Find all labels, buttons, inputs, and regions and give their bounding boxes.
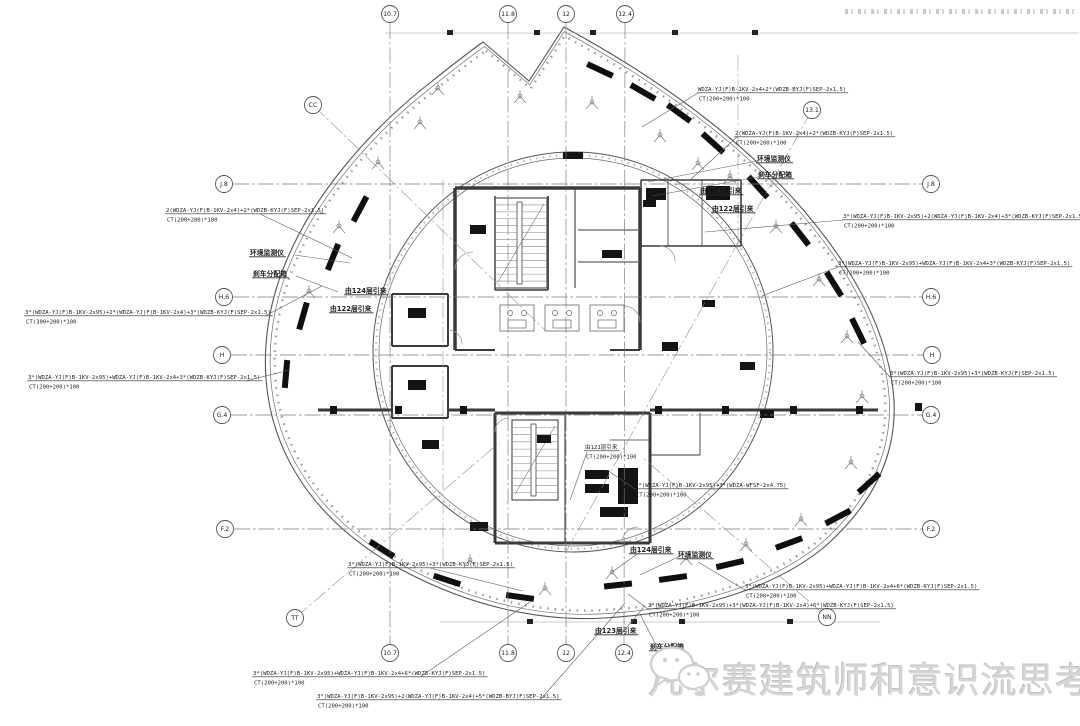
grid-bubble: 10.7	[382, 6, 399, 23]
grid-bubble: 12.4	[617, 6, 634, 23]
grid-bubble-label: H.6	[219, 294, 230, 301]
equipment-block	[408, 380, 426, 390]
machine-unit	[500, 305, 534, 331]
cable-annotation: 3*(WDZA-YJ(F)B-1KV-2x95)+3*(WDZA-YJ(F)B-…	[647, 603, 896, 619]
callout-label-text: 由123层引来	[595, 626, 637, 635]
grid-bubble-label: F.2	[927, 526, 936, 533]
leader-line	[612, 552, 640, 572]
spider-bracket	[539, 582, 551, 595]
equipment-block	[740, 362, 755, 370]
equipment-block	[470, 225, 486, 234]
grid-bubble: H.6	[923, 289, 940, 306]
spider-bracket	[514, 90, 526, 103]
spider-bracket	[654, 129, 666, 142]
leader-line	[858, 342, 890, 377]
callout-label: 环境监测仪	[677, 550, 714, 559]
grid-bubble-label: 11.8	[501, 650, 515, 657]
cable-tray-bar	[325, 243, 341, 271]
grid-bubble-label: TT	[290, 615, 299, 622]
grid-bubble: J.8	[923, 176, 940, 193]
cable-ct-text: CT(200+200)*100	[839, 271, 890, 277]
grid-bubble: G.4	[214, 407, 231, 424]
spider-bracket	[740, 538, 752, 551]
callout-label-text: 刹车分配箱	[758, 170, 792, 179]
equipment-block	[643, 200, 656, 207]
building-shell	[265, 27, 894, 619]
cable-tray-bar	[296, 302, 309, 331]
cable-spec-text: 3*(WDZA-YJ(F)B-1KV-2x95)+3*(WDZA-WFSF-2x…	[635, 483, 787, 489]
cable-tray-bar	[506, 592, 535, 602]
equipment-block	[460, 406, 467, 414]
cable-tray-bar	[629, 82, 656, 101]
cable-ct-text: CT(200+200)*100	[254, 681, 305, 687]
dimension-tick	[527, 619, 533, 624]
equipment-block	[537, 435, 551, 443]
callout-label-text: 环境监测仪	[250, 248, 284, 257]
cable-spec-text: 3*(WDZA-YJ(F)B-1KV-2x95)+2(WDZA-YJ(F)B-1…	[843, 214, 1080, 220]
machine-unit	[590, 305, 624, 331]
callout-label: 刹车分配箱	[757, 170, 794, 179]
grid-bubble-label: J.8	[219, 181, 228, 188]
cable-ct-text: CT(200+200)*100	[29, 385, 80, 391]
leader-line	[640, 614, 658, 649]
cable-ct-text: CT(200+200)*100	[318, 704, 369, 710]
cable-tray-bar	[716, 558, 745, 570]
callout-label-text: 环境监测仪	[678, 550, 712, 559]
machine-unit	[545, 305, 579, 331]
equipment-block	[602, 250, 622, 258]
callout-label-text: 由124层引来	[700, 186, 742, 195]
grid-bubble: G.4	[923, 407, 940, 424]
annotations: 2(WDZA-YJ(F)B-1KV-2x4)+2*(WDZB-KYJ(F)SEP…	[24, 87, 1080, 710]
spider-bracket	[414, 116, 426, 129]
cable-spec-text: 3*(WDZA-YJ(F)B-1KV-2x95)+3*(WDZA-YJ(F)B-…	[648, 603, 894, 609]
cable-annotation: 3*(WDZA-YJ(F)B-1KV-2x95)+3*(WDZB-KYJ(F)S…	[889, 371, 1057, 387]
cable-spec-text: 2(WDZA-YJ(F)B-1KV-2x4)+2*(WDZB-KYJ(F)SEP…	[166, 208, 324, 214]
grid-bubble: 12	[558, 6, 575, 23]
grid-bubble-label: 10.7	[383, 650, 397, 657]
spider-bracket	[795, 513, 807, 526]
leader-line	[648, 161, 757, 182]
grid-axes: J.8J.8H.6H.6HHG.4G.4F.2F.210.710.711.811…	[214, 6, 941, 662]
equipment-block	[760, 410, 774, 418]
grid-bubble-label: H.6	[926, 294, 937, 301]
cable-annotation: WDZA-YJ(F)B-1KV-2x4+2*(WDZB-BYJ(F)SEP-2x…	[697, 87, 848, 103]
equipment-block	[722, 406, 729, 414]
equipment-block	[422, 440, 439, 449]
dimension-tick	[752, 30, 758, 35]
grid-line-diagonal	[295, 442, 500, 618]
grid-bubble-label: G.4	[217, 412, 228, 419]
grid-bubble: 12.4	[616, 645, 633, 662]
dimension-tick	[787, 619, 793, 624]
grid-bubble: TT	[287, 610, 304, 627]
grid-bubble: F.2	[923, 521, 940, 538]
cable-tray-bar	[586, 61, 614, 78]
callout-label: 由123层引来	[594, 626, 638, 635]
leader-line	[762, 267, 838, 296]
leader-line	[570, 452, 587, 500]
equipment-block	[408, 308, 426, 318]
equipment-block	[702, 300, 715, 307]
cable-tray-bar	[604, 581, 632, 590]
stair	[495, 198, 547, 288]
cable-ct-text: CT(200+200)*100	[586, 455, 637, 461]
grid-bubble: H	[214, 347, 231, 364]
leader-line	[295, 255, 350, 263]
spider-bracket	[770, 220, 782, 233]
cable-ct-text: CT(200+200)*100	[844, 224, 895, 230]
cable-annotation: 3*(WDZA-YJ(F)B-1KV-2x95)+WDZA-YJ(F)B-1KV…	[27, 375, 262, 391]
grid-bubble-label: 12	[562, 650, 570, 657]
equipment-block	[600, 507, 628, 517]
grid-bubble: H	[924, 347, 941, 364]
equipment-block	[330, 406, 337, 414]
equipment-block	[470, 522, 488, 531]
cable-annotation: 3*(WDZA-YJ(F)B-1KV-2x95)+WDZA-YJ(F)B-1KV…	[744, 584, 979, 600]
callout-label-text: 刹车分配箱	[253, 269, 287, 278]
grid-bubble-label: 13.1	[805, 107, 819, 114]
grid-bubble: H.6	[216, 289, 233, 306]
grid-bubble-label: 10.7	[383, 11, 397, 18]
drawing-canvas: J.8J.8H.6H.6HHG.4G.4F.2F.210.710.711.811…	[0, 0, 1080, 726]
callout-label: 环境监测仪	[756, 154, 793, 163]
equipment-block	[856, 406, 863, 414]
cable-tray-bar	[369, 539, 396, 559]
floor-plan-svg: J.8J.8H.6H.6HHG.4G.4F.2F.210.710.711.811…	[0, 0, 1080, 726]
grid-bubble-label: H	[220, 352, 225, 359]
grid-bubble: 10.7	[382, 645, 399, 662]
grid-bubble-label: H	[930, 352, 935, 359]
cable-tray-bar	[789, 221, 811, 247]
callout-label-text: 由122层引来	[712, 204, 754, 213]
cable-annotation: 3*(WDZA-YJ(F)B-1KV-2x95)+WDZA-YJ(F)B-1KV…	[837, 261, 1072, 277]
grid-bubble: CC	[305, 97, 322, 114]
cable-spec-text: 3*(WDZA-YJ(F)B-1KV-2x95)+WDZA-YJ(F)B-1KV…	[28, 375, 260, 381]
spider-bracket	[845, 456, 857, 469]
grid-bubble-label: 12	[562, 11, 570, 18]
door-arc	[455, 252, 473, 270]
cable-tray-bar	[351, 195, 369, 223]
callout-label-text: 由122层引来	[330, 304, 372, 313]
grid-line-vertical	[624, 23, 625, 644]
dimension-tick	[679, 619, 685, 624]
spider-bracket	[606, 566, 618, 579]
cable-spec-text: 3*(WDZA-YJ(F)B-1KV-2x95)+3*(WDZB-KYJ(F)S…	[890, 371, 1055, 377]
grid-bubble: 12	[558, 645, 575, 662]
dimension-tick	[534, 30, 540, 35]
grid-bubble-label: F.2	[221, 526, 230, 533]
door-arc	[495, 418, 509, 432]
callout-label: 环境监测仪	[249, 248, 286, 257]
shell-outer-line	[265, 27, 894, 619]
callout-label: 由124层引来	[699, 186, 743, 195]
equipment-block	[790, 406, 797, 414]
cable-annotation: 3*(WDZA-YJ(F)B-1KV-2x95)+2(WDZA-YJ(F)B-1…	[842, 214, 1080, 230]
callout-label-text: 环境监测仪	[757, 154, 791, 163]
cable-ct-text: CT(200+200)*100	[699, 97, 750, 103]
cable-spec-text: 2(WDZA-YJ(F)B-1KV-2x4)+2*(WDZB-KYJ(F)SEP…	[735, 131, 893, 137]
door-arc	[660, 246, 675, 261]
grid-bubble-label: G.4	[926, 412, 937, 419]
grid-line-diagonal	[313, 105, 545, 330]
shell-mullion-ticks	[275, 36, 886, 610]
cable-spec-text: WDZA-YJ(F)B-1KV-2x4+2*(WDZB-BYJ(F)SEP-2x…	[698, 87, 846, 93]
cable-spec-text: 3*(WDZA-YJ(F)B-1KV-2x95)+WDZA-YJ(F)B-1KV…	[838, 261, 1070, 267]
equipment-block	[395, 406, 402, 414]
callout-label: 由122层引来	[329, 304, 373, 313]
callout-label-text: 由124层引来	[630, 545, 672, 554]
cable-tray-bar	[282, 360, 290, 388]
leader-line	[640, 557, 678, 575]
cable-ct-text: CT(200+200)*100	[746, 594, 797, 600]
callout-label: 由122层引来	[711, 204, 755, 213]
grid-bubble: F.2	[217, 521, 234, 538]
cable-ct-text: CT(200+200)*100	[649, 613, 700, 619]
dimension-tick	[672, 30, 678, 35]
cable-ct-text: CT(300+200)*100	[26, 320, 77, 326]
grid-bubble-label: 12.4	[618, 11, 632, 18]
grid-bubble-label: J.8	[926, 181, 935, 188]
grid-bubble-label: CC	[309, 102, 318, 109]
cable-ct-text: CT(200+200)*100	[167, 218, 218, 224]
cable-spec-text: 3*(WDZA-YJ(F)B-1KV-2x95)+WDZA-YJ(F)B-1KV…	[745, 584, 977, 590]
spider-bracket	[692, 157, 704, 170]
grid-bubble-label: 11.8	[501, 11, 515, 18]
grid-bubble-label: NN	[822, 614, 832, 621]
grid-bubble: NN	[819, 609, 836, 626]
cable-annotation: 3*(WDZA-YJ(F)B-1KV-2x95)+2*(WDZA-YJ(F)B-…	[24, 310, 273, 326]
equipment-block	[915, 403, 922, 411]
leader-line	[420, 602, 530, 677]
leader-line	[265, 286, 322, 316]
cable-ct-text: CT(200+200)*100	[349, 572, 400, 578]
cable-annotation: 2(WDZA-YJ(F)B-1KV-2x4)+2*(WDZB-KYJ(F)SEP…	[734, 131, 895, 147]
callout-label: 由124层引来	[629, 545, 673, 554]
door-arc	[624, 306, 640, 322]
grid-bubble: 11.8	[500, 645, 517, 662]
callout-label: 由124层引来	[344, 286, 388, 295]
cable-ct-text: CT(200+200)*100	[736, 141, 787, 147]
faded-header-strip	[845, 9, 1077, 14]
cable-spec-text: 3*(WDZA-YJ(F)B-1KV-2x95)+2*(WDZA-YJ(F)B-…	[25, 310, 271, 316]
grid-bubble: 11.8	[500, 6, 517, 23]
cable-spec-text: 3*(WDZA-YJ(F)B-1KV-2x95)+2(WDZA-YJ(F)B-1…	[317, 694, 559, 700]
leader-line	[628, 594, 648, 609]
spider-bracket	[303, 285, 315, 298]
stair	[512, 420, 558, 500]
spider-bracket	[813, 273, 825, 286]
cable-annotation: 由121层引来CT(200+200)*100	[584, 443, 637, 461]
callout-label: 刹车分配箱	[252, 269, 289, 278]
spider-bracket	[372, 156, 384, 169]
cable-annotation: 3*(WDZA-YJ(F)B-1KV-2x95)+3*(WDZB-KYJ(F)S…	[347, 562, 515, 578]
cable-spec-text: 3*(WDZA-YJ(F)B-1KV-2x95)+WDZA-YJ(F)B-1KV…	[253, 671, 485, 677]
callout-label: 刹车分配箱	[649, 642, 686, 651]
leader-line	[705, 220, 843, 232]
cable-tray-bar	[775, 535, 803, 550]
grid-bubble-label: 12.4	[617, 650, 631, 657]
spider-bracket	[586, 96, 598, 109]
spider-bracket	[333, 220, 345, 233]
cable-annotation: 2(WDZA-YJ(F)B-1KV-2x4)+2*(WDZB-KYJ(F)SEP…	[165, 208, 326, 224]
dimension-tick	[590, 30, 596, 35]
leader-line	[296, 276, 338, 292]
cable-annotation: 3*(WDZA-YJ(F)B-1KV-2x95)+WDZA-YJ(F)B-1KV…	[252, 671, 487, 687]
cable-tray-bar	[849, 317, 867, 345]
plan-details	[282, 30, 1079, 624]
cable-tray-bar	[659, 573, 688, 583]
spider-bracket	[841, 330, 853, 343]
equipment-block	[662, 342, 678, 351]
callout-label-text: 由124层引来	[345, 286, 387, 295]
grid-bubble: 13.1	[804, 102, 821, 119]
cable-spec-text: 由121层引来	[585, 443, 618, 451]
equipment-block	[585, 484, 609, 493]
dimension-tick	[447, 30, 453, 35]
cable-ct-text: CT(200+200)*100	[636, 493, 687, 499]
cable-annotation: 3*(WDZA-YJ(F)B-1KV-2x95)+2(WDZA-YJ(F)B-1…	[316, 694, 561, 710]
equipment-block	[655, 406, 662, 414]
cable-ct-text: CT(200+200)*100	[891, 381, 942, 387]
grid-bubble: J.8	[216, 176, 233, 193]
equipment-block	[585, 470, 609, 479]
cable-spec-text: 3*(WDZA-YJ(F)B-1KV-2x95)+3*(WDZB-KYJ(F)S…	[348, 562, 513, 568]
spider-bracket	[856, 390, 868, 403]
